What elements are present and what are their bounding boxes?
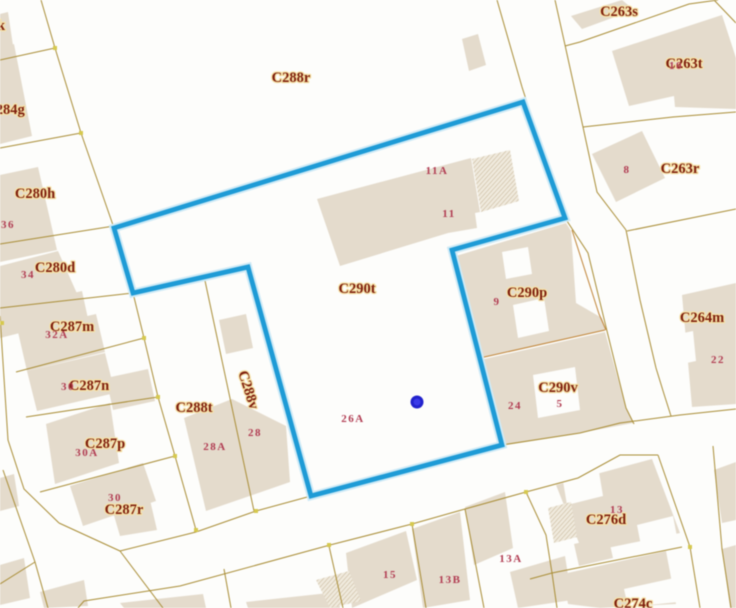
- svg-text:11A: 11A: [426, 165, 449, 177]
- svg-text:C290p: C290p: [507, 285, 547, 301]
- svg-text:24: 24: [508, 400, 522, 412]
- svg-text:13: 13: [610, 504, 624, 516]
- svg-text:C288t: C288t: [175, 400, 212, 416]
- svg-text:C263s: C263s: [600, 4, 638, 20]
- svg-text:28: 28: [248, 427, 262, 439]
- svg-text:C264m: C264m: [680, 310, 724, 326]
- svg-text:32A: 32A: [45, 329, 68, 341]
- svg-text:36: 36: [1, 219, 15, 231]
- svg-text:C263r: C263r: [661, 161, 700, 177]
- svg-text:C290t: C290t: [338, 281, 375, 297]
- svg-text:10: 10: [669, 60, 683, 72]
- svg-text:30: 30: [108, 492, 122, 504]
- svg-text:C287r: C287r: [105, 502, 144, 518]
- svg-text:5: 5: [557, 398, 564, 410]
- svg-text:34: 34: [21, 269, 35, 281]
- svg-text:C290v: C290v: [538, 380, 578, 396]
- svg-text:13A: 13A: [499, 553, 522, 565]
- svg-text:15: 15: [383, 569, 397, 581]
- svg-text:C284g: C284g: [0, 102, 25, 118]
- svg-text:C280d: C280d: [35, 260, 75, 276]
- svg-text:26A: 26A: [341, 413, 364, 425]
- svg-text:13B: 13B: [439, 574, 462, 586]
- svg-text:9: 9: [494, 296, 501, 308]
- svg-text:22: 22: [711, 354, 725, 366]
- svg-text:8: 8: [624, 164, 631, 176]
- svg-text:C280h: C280h: [15, 186, 55, 202]
- svg-text:30A: 30A: [75, 447, 98, 459]
- svg-text:11: 11: [442, 208, 455, 220]
- svg-text:C288r: C288r: [272, 70, 311, 86]
- svg-text:C274c: C274c: [614, 596, 653, 608]
- svg-text:28A: 28A: [203, 441, 226, 453]
- svg-text:30: 30: [61, 381, 75, 393]
